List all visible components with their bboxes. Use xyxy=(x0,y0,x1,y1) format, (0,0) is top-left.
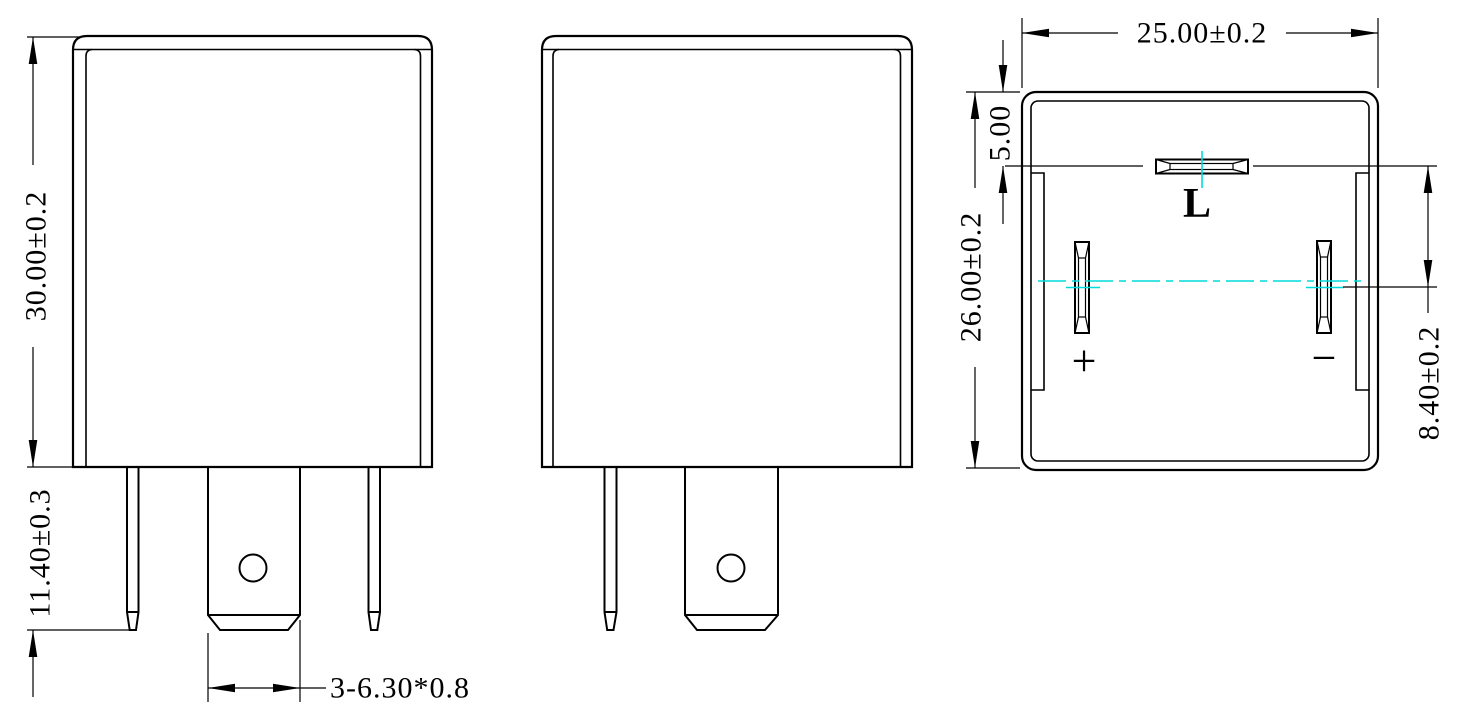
dim-body-width: 25.00±0.2 xyxy=(1022,17,1378,89)
front-pin-right xyxy=(369,467,381,630)
side-body-outline xyxy=(542,36,912,467)
front-pin-blade xyxy=(208,467,300,630)
dim-l-offset-text: 5.00 xyxy=(984,105,1017,162)
dimensions: 30.00±0.2 11.40±0.3 3-6.30*0.8 xyxy=(20,17,1446,705)
dim-row-offset: 8.40±0.2 xyxy=(1253,166,1446,440)
side-view xyxy=(542,36,912,630)
dim-body-depth-text: 26.00±0.2 xyxy=(955,212,988,342)
front-body-outline xyxy=(73,36,432,467)
l-pin-label: L xyxy=(1183,181,1211,227)
blade-hole xyxy=(240,555,267,582)
dim-front-height-text: 30.00±0.2 xyxy=(20,191,53,321)
side-pin-thin xyxy=(605,467,617,630)
bottom-view: L + − xyxy=(1022,92,1378,470)
side-blade-hole xyxy=(718,555,745,582)
dim-front-height: 30.00±0.2 xyxy=(20,37,81,467)
front-pin-left xyxy=(127,467,139,630)
dim-blade-spec-text: 3-6.30*0.8 xyxy=(330,672,470,705)
drawing-canvas: L + − 30.00±0.2 11.40±0.3 xyxy=(0,0,1484,715)
dim-body-width-text: 25.00±0.2 xyxy=(1137,17,1267,50)
dim-pin-length: 11.40±0.3 xyxy=(24,488,130,697)
side-pin-blade xyxy=(685,467,778,630)
side-body-contour-lines xyxy=(543,50,911,468)
front-view xyxy=(73,36,432,630)
plus-pin-label: + xyxy=(1072,337,1097,386)
dim-blade-spec: 3-6.30*0.8 xyxy=(208,620,470,705)
dim-l-offset: 5.00 xyxy=(984,40,1144,224)
dim-row-offset-text: 8.40±0.2 xyxy=(1413,326,1446,440)
minus-pin-label: − xyxy=(1312,334,1337,383)
dim-pin-length-text: 11.40±0.3 xyxy=(24,488,57,617)
front-body-contour-lines xyxy=(74,50,431,468)
